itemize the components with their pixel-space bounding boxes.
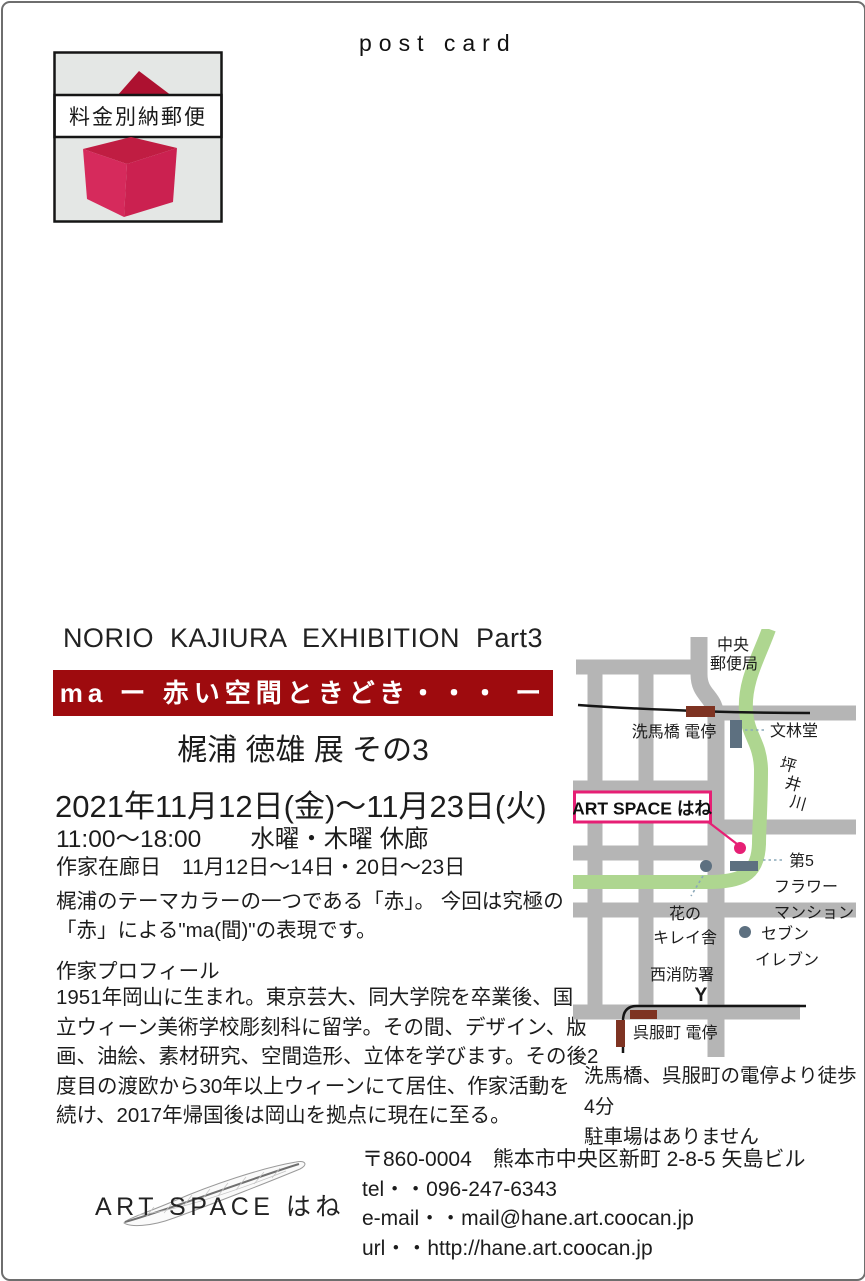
contact-email: e-mail・・mail@hane.art.coocan.jp bbox=[362, 1204, 805, 1234]
gofukumachi-stop-label: 呉服町 電停 bbox=[633, 1024, 717, 1042]
gofukumachi-stop-marker bbox=[630, 1010, 657, 1019]
exhibition-title-jp: 梶浦 徳雄 展 その3 bbox=[51, 725, 555, 769]
gofukumachi-stop-marker-2 bbox=[616, 1020, 625, 1047]
hanano-dot bbox=[700, 860, 712, 872]
postage-stamp: 料金別納郵便 bbox=[53, 51, 223, 223]
mansion-building bbox=[730, 861, 758, 871]
river-label-1: 坪 bbox=[778, 755, 798, 777]
gallery-callout-label: ART SPACE はね bbox=[573, 799, 712, 819]
gallery-location-dot bbox=[734, 842, 746, 854]
river-label-2: 井 bbox=[783, 774, 803, 796]
exhibition-description: 梶浦のテーマカラーの一つである「赤」。 今回は究極の 「赤」による"ma(間)"… bbox=[56, 887, 564, 945]
exhibition-title-en: NORIO KAJIURA EXHIBITION Part3 bbox=[51, 623, 555, 654]
semba-stop-marker bbox=[686, 706, 715, 717]
seven-eleven-label-1: セブン bbox=[761, 924, 809, 943]
exhibition-hours: 11:00～18:00 水曜・木曜 休廊 bbox=[56, 820, 429, 855]
bunrindo-label: 文林堂 bbox=[770, 722, 818, 740]
hanano-label-1: 花の bbox=[669, 905, 701, 923]
semba-stop-label: 洗馬橋 電停 bbox=[632, 723, 716, 741]
mansion-label-3: マンション bbox=[774, 905, 854, 922]
profile-heading: 作家プロフィール bbox=[56, 954, 220, 984]
mansion-label-1: 第5 bbox=[789, 852, 814, 870]
artist-profile: 1951年岡山に生まれ。東京芸大、同大学院を卒業後、国 立ウィーン美術学校彫刻科… bbox=[56, 983, 598, 1131]
hanano-label-2: キレイ舎 bbox=[653, 929, 717, 947]
mansion-label-2: フラワー bbox=[774, 879, 838, 896]
river-label-3: 川 bbox=[788, 794, 808, 815]
fire-station-label: 西消防署 bbox=[650, 966, 714, 984]
stamp-label: 料金別納郵便 bbox=[69, 106, 207, 129]
post-card-label: post card bbox=[359, 30, 517, 57]
map-roads bbox=[573, 637, 856, 1057]
contact-block: 〒860-0004 熊本市中央区新町 2-8-5 矢島ビル tel・・096-2… bbox=[362, 1145, 805, 1263]
contact-tel: tel・・096-247-6343 bbox=[362, 1175, 805, 1205]
contact-url: url・・http://hane.art.coocan.jp bbox=[362, 1234, 805, 1264]
contact-address: 〒860-0004 熊本市中央区新町 2-8-5 矢島ビル bbox=[362, 1145, 805, 1175]
bunrindo-building bbox=[730, 720, 742, 748]
seven-eleven-dot bbox=[739, 926, 751, 938]
map-access-notes: 洗馬橋、呉服町の電停より徒歩4分 駐車場はありません bbox=[584, 1061, 864, 1153]
fire-station-symbol: Y bbox=[695, 985, 708, 1006]
gallery-logo-text: ART SPACE はね bbox=[95, 1187, 345, 1223]
access-map: ART SPACE はね 中央 郵便局 洗馬橋 電停 文林堂 坪 井 川 第5 … bbox=[573, 629, 863, 1081]
artist-attendance-days: 作家在廊日 11月12日～14日・20日～23日 bbox=[56, 851, 465, 881]
post-office-label-1: 中央 bbox=[717, 636, 749, 654]
exhibition-banner: ma ー 赤い空間ときどき・・・ ー bbox=[53, 670, 553, 716]
seven-eleven-label-2: イレブン bbox=[755, 950, 819, 969]
post-office-label-2: 郵便局 bbox=[710, 655, 758, 673]
postcard-card: 料金別納郵便 post card NORIO KAJIURA EXHIBITIO… bbox=[1, 1, 865, 1281]
